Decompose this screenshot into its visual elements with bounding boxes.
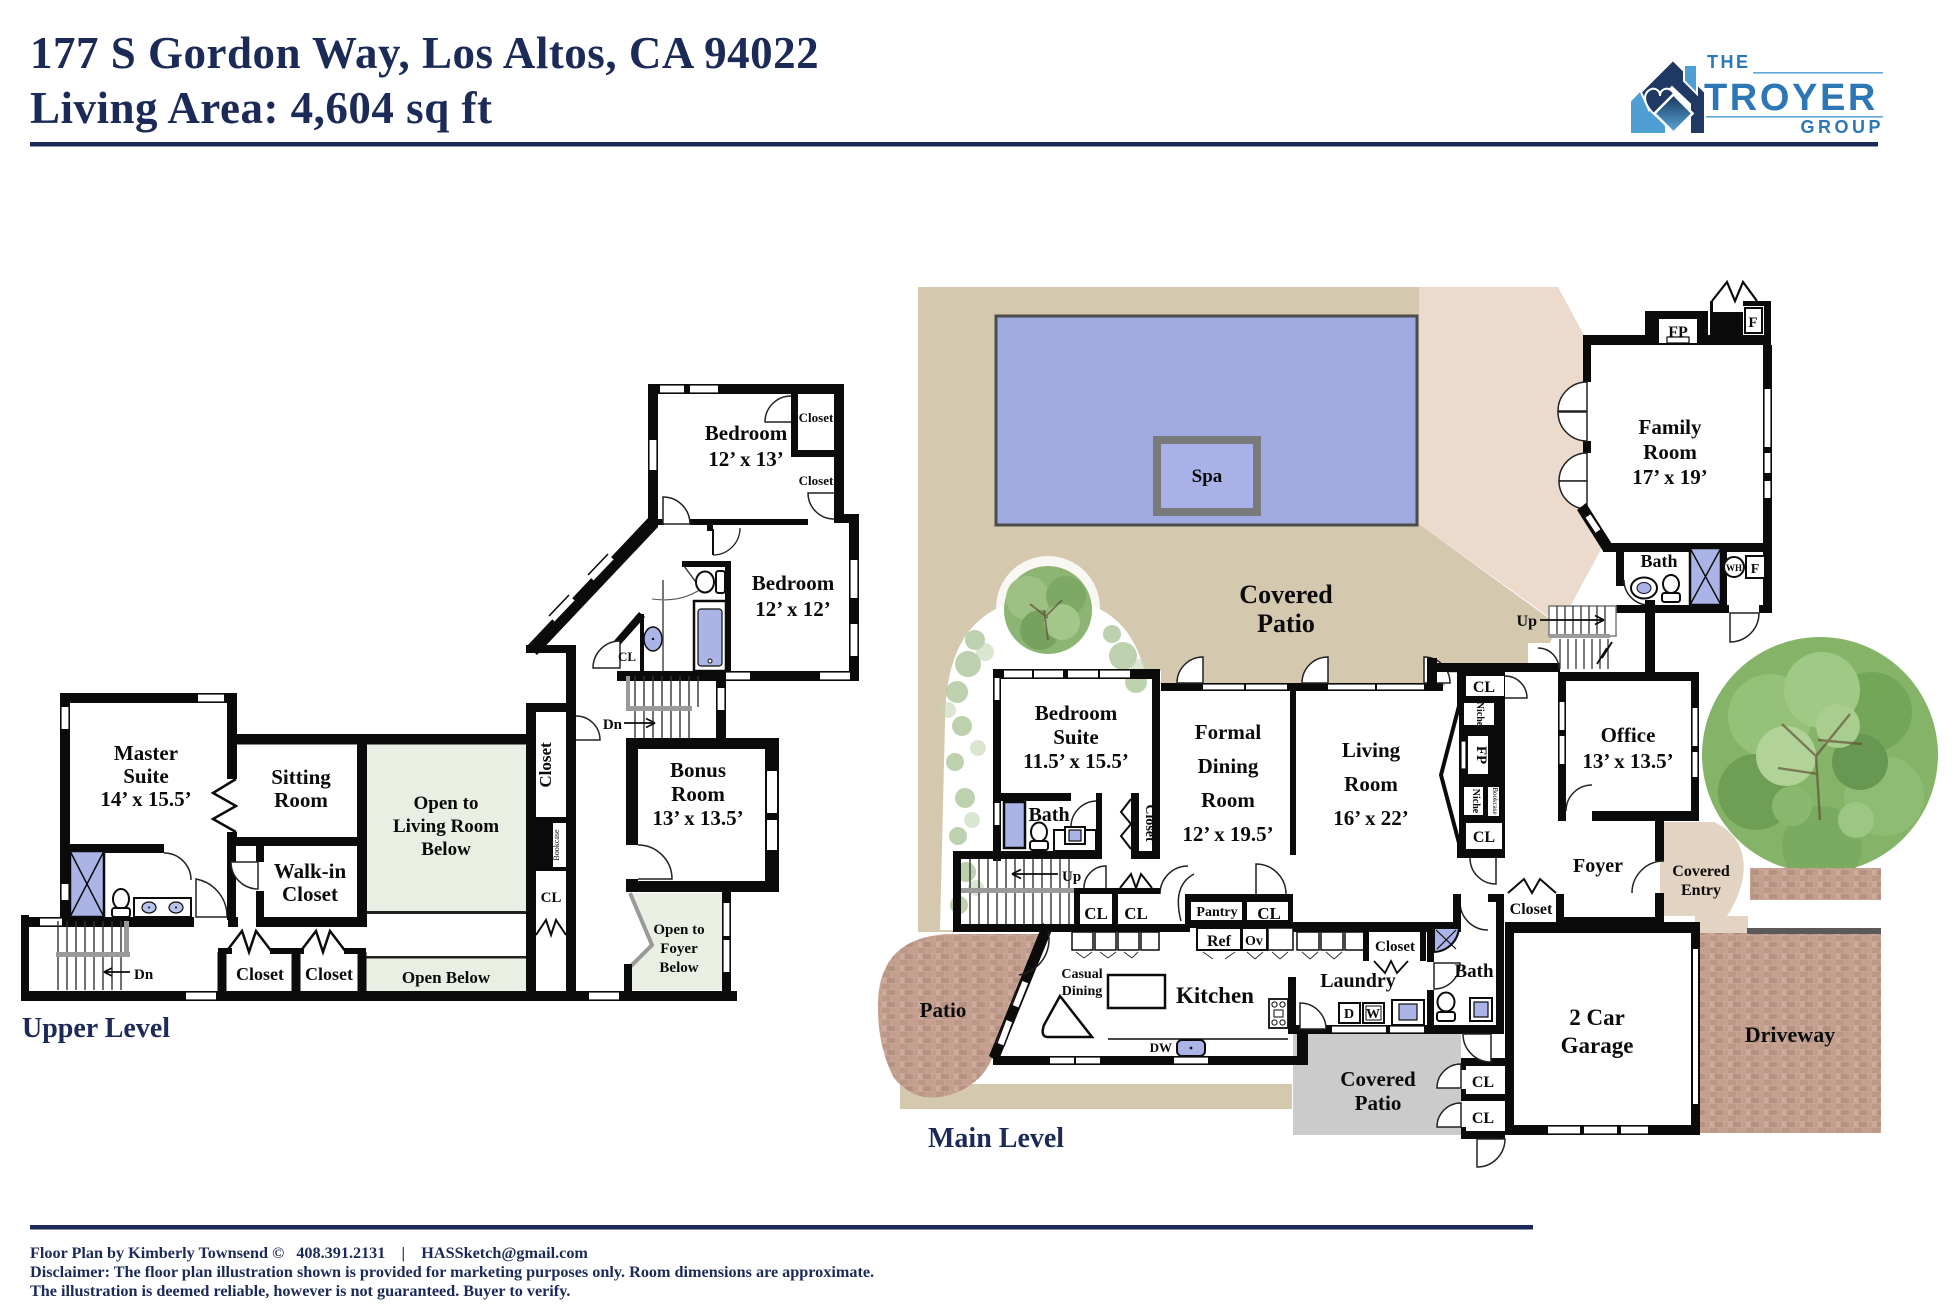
svg-text:Bonus: Bonus bbox=[670, 758, 726, 782]
svg-text:Bath: Bath bbox=[1028, 804, 1069, 826]
svg-text:Niche: Niche bbox=[1474, 702, 1485, 727]
svg-text:Casual: Casual bbox=[1061, 967, 1102, 982]
svg-text:Bedroom: Bedroom bbox=[752, 571, 835, 595]
svg-text:F: F bbox=[1748, 315, 1757, 331]
svg-text:CL: CL bbox=[1473, 679, 1495, 696]
svg-text:Patio: Patio bbox=[1355, 1091, 1402, 1115]
svg-text:CL: CL bbox=[618, 649, 636, 664]
svg-text:Walk-in: Walk-in bbox=[274, 859, 347, 883]
svg-text:Bookcase: Bookcase bbox=[1491, 787, 1499, 814]
svg-text:CL: CL bbox=[1472, 1110, 1494, 1127]
svg-text:Main Level: Main Level bbox=[928, 1123, 1064, 1154]
svg-text:Upper Level: Upper Level bbox=[22, 1013, 170, 1044]
svg-text:CL: CL bbox=[1084, 904, 1108, 923]
svg-text:Formal: Formal bbox=[1195, 720, 1262, 744]
svg-text:Below: Below bbox=[659, 960, 698, 976]
svg-text:Room: Room bbox=[274, 788, 328, 812]
svg-text:12’ x 19.5’: 12’ x 19.5’ bbox=[1182, 822, 1273, 846]
svg-text:Kitchen: Kitchen bbox=[1176, 983, 1254, 1008]
svg-text:Floor Plan by Kimberly Townsen: Floor Plan by Kimberly Townsend © 408.39… bbox=[30, 1244, 588, 1262]
svg-text:THE: THE bbox=[1707, 52, 1751, 72]
svg-text:2 Car: 2 Car bbox=[1569, 1005, 1625, 1030]
svg-text:D: D bbox=[1344, 1007, 1354, 1022]
svg-text:CL: CL bbox=[541, 890, 562, 906]
svg-text:16’ x 22’: 16’ x 22’ bbox=[1333, 806, 1408, 830]
svg-text:Dining: Dining bbox=[1198, 754, 1259, 778]
svg-text:Bath: Bath bbox=[1454, 961, 1494, 982]
svg-text:Up: Up bbox=[1517, 613, 1538, 630]
svg-text:CL: CL bbox=[1257, 904, 1281, 923]
svg-text:13’ x 13.5’: 13’ x 13.5’ bbox=[652, 806, 743, 830]
svg-text:Dining: Dining bbox=[1062, 984, 1102, 999]
svg-text:Closet: Closet bbox=[1510, 901, 1553, 918]
svg-text:17’ x 19’: 17’ x 19’ bbox=[1632, 465, 1707, 489]
svg-text:Closet: Closet bbox=[282, 882, 338, 906]
svg-text:Room: Room bbox=[671, 782, 725, 806]
svg-text:Open to: Open to bbox=[653, 922, 704, 938]
svg-text:DW: DW bbox=[1150, 1040, 1172, 1055]
svg-text:14’ x 15.5’: 14’ x 15.5’ bbox=[100, 787, 191, 811]
svg-text:Garage: Garage bbox=[1561, 1033, 1634, 1058]
svg-text:CL: CL bbox=[1472, 1074, 1494, 1091]
svg-text:Open to: Open to bbox=[414, 793, 479, 814]
svg-text:Up: Up bbox=[1062, 869, 1081, 885]
svg-text:12’ x 13’: 12’ x 13’ bbox=[708, 447, 783, 471]
svg-text:Room: Room bbox=[1201, 788, 1255, 812]
svg-text:Office: Office bbox=[1601, 723, 1656, 747]
svg-text:Room: Room bbox=[1643, 440, 1697, 464]
svg-text:Ref: Ref bbox=[1207, 933, 1232, 950]
svg-text:CL: CL bbox=[1473, 829, 1495, 846]
svg-text:W: W bbox=[1366, 1007, 1380, 1022]
svg-text:Foyer: Foyer bbox=[1573, 855, 1623, 877]
svg-text:Suite: Suite bbox=[1053, 725, 1099, 749]
svg-text:Room: Room bbox=[1344, 772, 1398, 796]
svg-text:Patio: Patio bbox=[920, 998, 967, 1022]
svg-text:Closet: Closet bbox=[305, 964, 353, 984]
svg-text:FP: FP bbox=[1668, 324, 1688, 341]
svg-text:Closet: Closet bbox=[799, 473, 834, 488]
svg-text:Closet: Closet bbox=[536, 742, 555, 788]
svg-text:Covered: Covered bbox=[1340, 1067, 1416, 1091]
svg-text:13’ x 13.5’: 13’ x 13.5’ bbox=[1582, 749, 1673, 773]
svg-text:WH: WH bbox=[1726, 563, 1742, 573]
svg-text:Bookcase: Bookcase bbox=[552, 829, 561, 861]
svg-text:The illustration is deemed rel: The illustration is deemed reliable, how… bbox=[30, 1282, 570, 1300]
svg-text:Living: Living bbox=[1342, 738, 1401, 762]
svg-text:TROYER: TROYER bbox=[1704, 77, 1878, 119]
svg-text:177 S Gordon Way, Los Altos, C: 177 S Gordon Way, Los Altos, CA 94022 bbox=[30, 28, 819, 78]
svg-text:CL: CL bbox=[1124, 904, 1148, 923]
svg-text:FP: FP bbox=[1473, 746, 1489, 764]
svg-text:Entry: Entry bbox=[1681, 882, 1721, 899]
svg-text:Dn: Dn bbox=[603, 717, 623, 733]
svg-text:Below: Below bbox=[421, 839, 471, 860]
svg-text:Family: Family bbox=[1639, 415, 1702, 439]
svg-text:F: F bbox=[1751, 562, 1760, 577]
svg-text:GROUP: GROUP bbox=[1800, 117, 1884, 137]
svg-text:Living Area: 4,604 sq ft: Living Area: 4,604 sq ft bbox=[30, 83, 492, 133]
svg-text:Covered: Covered bbox=[1239, 580, 1333, 609]
svg-text:Niche: Niche bbox=[1470, 789, 1481, 814]
svg-text:Disclaimer: The floor plan ill: Disclaimer: The floor plan illustration … bbox=[30, 1263, 874, 1281]
svg-text:Master: Master bbox=[114, 741, 178, 765]
svg-text:12’ x 12’: 12’ x 12’ bbox=[755, 597, 830, 621]
svg-text:Open Below: Open Below bbox=[402, 968, 491, 987]
svg-text:Sitting: Sitting bbox=[271, 765, 331, 789]
svg-text:Foyer: Foyer bbox=[660, 941, 698, 957]
svg-text:Pantry: Pantry bbox=[1196, 905, 1237, 920]
svg-text:Ov: Ov bbox=[1245, 934, 1263, 949]
svg-text:Covered: Covered bbox=[1672, 863, 1730, 880]
svg-text:11.5’ x 15.5’: 11.5’ x 15.5’ bbox=[1023, 749, 1129, 773]
svg-text:Bedroom: Bedroom bbox=[1035, 701, 1118, 725]
svg-text:Bedroom: Bedroom bbox=[705, 421, 788, 445]
svg-text:Driveway: Driveway bbox=[1745, 1022, 1835, 1047]
svg-text:Dn: Dn bbox=[134, 967, 154, 983]
svg-text:Bath: Bath bbox=[1640, 551, 1677, 571]
svg-text:Closet: Closet bbox=[799, 410, 834, 425]
svg-text:Suite: Suite bbox=[123, 764, 169, 788]
svg-text:Living Room: Living Room bbox=[393, 816, 499, 837]
svg-text:Spa: Spa bbox=[1192, 466, 1223, 487]
svg-text:Closet: Closet bbox=[1375, 939, 1415, 955]
svg-text:Patio: Patio bbox=[1257, 609, 1315, 638]
svg-text:Laundry: Laundry bbox=[1320, 970, 1396, 992]
svg-text:Closet: Closet bbox=[236, 964, 284, 984]
svg-text:Closet: Closet bbox=[1142, 804, 1157, 842]
